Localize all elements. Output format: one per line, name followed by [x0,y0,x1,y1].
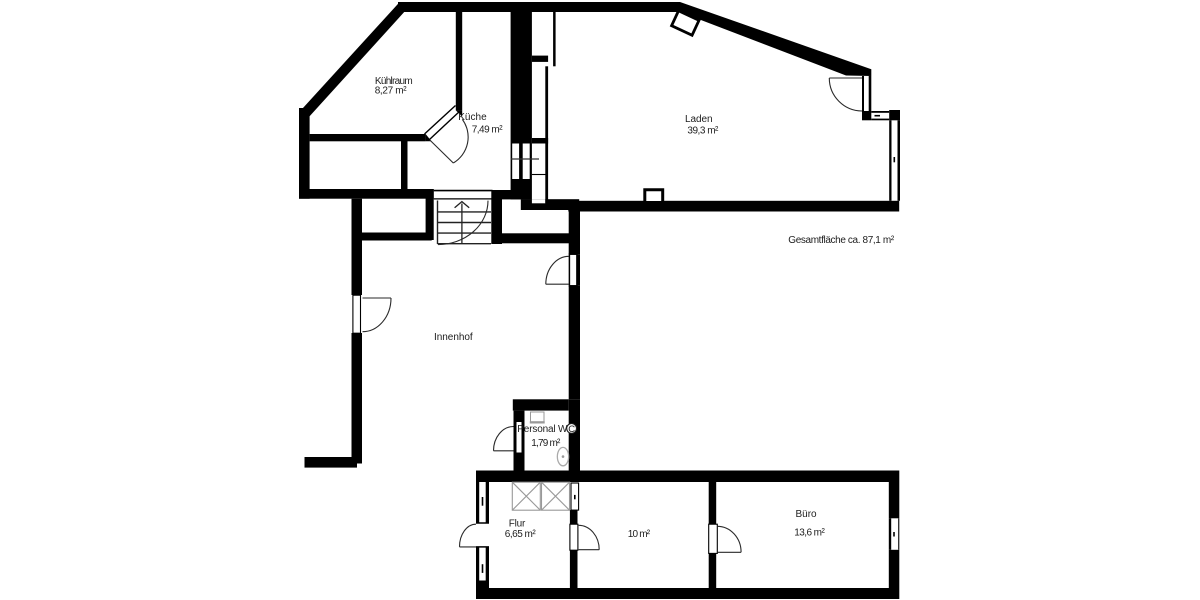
svg-text:C: C [568,424,575,435]
svg-text:1,79 m²: 1,79 m² [531,438,561,449]
svg-text:Gesamtfläche ca. 87,1 m²: Gesamtfläche ca. 87,1 m² [788,235,895,246]
svg-text:Küche: Küche [458,112,487,123]
svg-text:Büro: Büro [796,509,818,520]
svg-text:Laden: Laden [685,114,713,125]
svg-text:39,3 m²: 39,3 m² [687,126,719,137]
svg-text:7,49 m²: 7,49 m² [472,124,504,135]
svg-text:10 m²: 10 m² [628,529,651,540]
svg-text:Personal W: Personal W [517,424,568,435]
svg-text:Innenhof: Innenhof [434,332,473,343]
svg-text:13,6 m²: 13,6 m² [794,528,825,539]
svg-text:6,65 m²: 6,65 m² [505,529,537,540]
svg-text:Flur: Flur [509,518,526,529]
svg-text:8,27 m²: 8,27 m² [375,85,408,96]
